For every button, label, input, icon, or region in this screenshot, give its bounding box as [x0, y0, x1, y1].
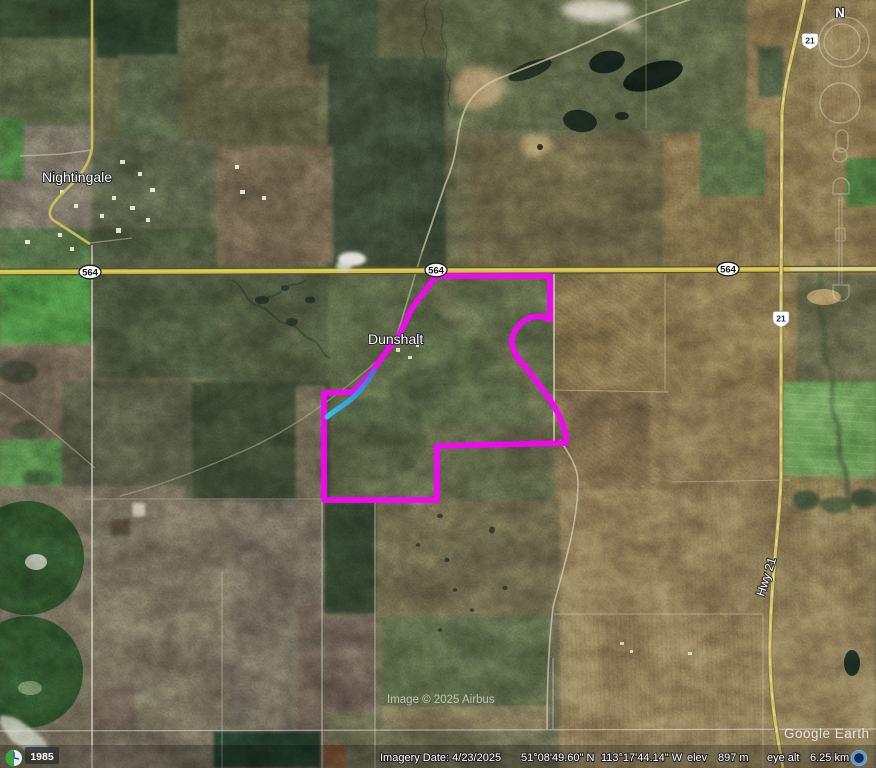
svg-text:Image © 2025 Airbus: Image © 2025 Airbus: [387, 694, 495, 706]
svg-text:elev: elev: [687, 752, 708, 764]
svg-text:564: 564: [720, 265, 737, 276]
svg-text:Dunshalt: Dunshalt: [368, 331, 423, 347]
svg-text:564: 564: [82, 268, 99, 279]
svg-text:51°08'49.60" N: 51°08'49.60" N: [521, 752, 594, 764]
svg-text:564: 564: [428, 266, 445, 277]
svg-text:eye alt: eye alt: [767, 752, 799, 764]
svg-text:1985: 1985: [30, 751, 54, 763]
svg-text:113°17'44.14" W: 113°17'44.14" W: [601, 752, 683, 764]
svg-text:21: 21: [776, 314, 786, 324]
svg-text:6.25 km: 6.25 km: [810, 752, 849, 764]
svg-text:Google Earth: Google Earth: [784, 726, 870, 741]
svg-text:897 m: 897 m: [718, 752, 749, 764]
svg-text:21: 21: [805, 36, 815, 46]
svg-text:Imagery Date: 4/23/2025: Imagery Date: 4/23/2025: [380, 752, 501, 764]
svg-text:Nightingale: Nightingale: [42, 169, 112, 185]
